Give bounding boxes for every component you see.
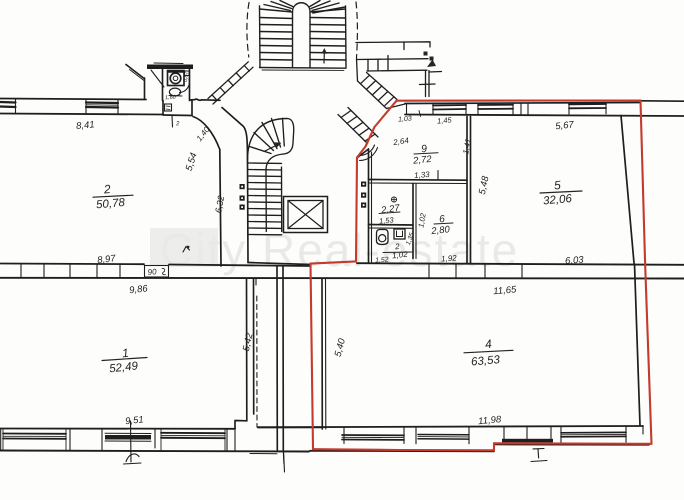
svg-text:9,86: 9,86 — [129, 283, 149, 296]
svg-text:1,60: 1,60 — [165, 94, 177, 101]
svg-text:2: 2 — [175, 121, 180, 127]
svg-text:50,78: 50,78 — [96, 197, 126, 212]
svg-text:5: 5 — [553, 178, 561, 193]
svg-text:1,92: 1,92 — [441, 253, 458, 263]
svg-text:2,64: 2,64 — [392, 136, 410, 147]
svg-text:2,27: 2,27 — [380, 203, 402, 217]
svg-text:32,06: 32,06 — [543, 193, 573, 208]
svg-text:11,65: 11,65 — [493, 284, 518, 297]
svg-text:8,97: 8,97 — [97, 253, 117, 266]
svg-text:11,98: 11,98 — [478, 414, 503, 427]
svg-text:1,33: 1,33 — [414, 170, 431, 180]
svg-text:1,45: 1,45 — [437, 115, 453, 125]
svg-text:4: 4 — [484, 337, 493, 352]
svg-text:5,40: 5,40 — [333, 337, 348, 358]
svg-text:63,53: 63,53 — [471, 354, 501, 369]
svg-text:2: 2 — [102, 182, 111, 197]
svg-text:1,53: 1,53 — [379, 215, 395, 225]
svg-text:City Real-estate: City Real-estate — [160, 224, 519, 276]
svg-text:6,03: 6,03 — [565, 255, 585, 267]
svg-text:6,32: 6,32 — [213, 195, 226, 214]
svg-text:5,48: 5,48 — [477, 175, 492, 196]
svg-text:52,49: 52,49 — [109, 360, 139, 375]
svg-text:1,52: 1,52 — [375, 257, 389, 265]
svg-text:90: 90 — [147, 267, 157, 277]
svg-text:2,80: 2,80 — [430, 224, 451, 237]
svg-text:1,03: 1,03 — [398, 115, 412, 123]
svg-text:8,41: 8,41 — [76, 119, 95, 132]
svg-text:9,51: 9,51 — [125, 414, 145, 427]
svg-text:0,87: 0,87 — [183, 70, 190, 82]
svg-text:5,67: 5,67 — [555, 119, 575, 132]
svg-text:1,40: 1,40 — [195, 125, 212, 143]
svg-text:1,02: 1,02 — [392, 250, 409, 261]
svg-text:5,54: 5,54 — [184, 151, 200, 172]
svg-text:2,72: 2,72 — [412, 154, 433, 167]
